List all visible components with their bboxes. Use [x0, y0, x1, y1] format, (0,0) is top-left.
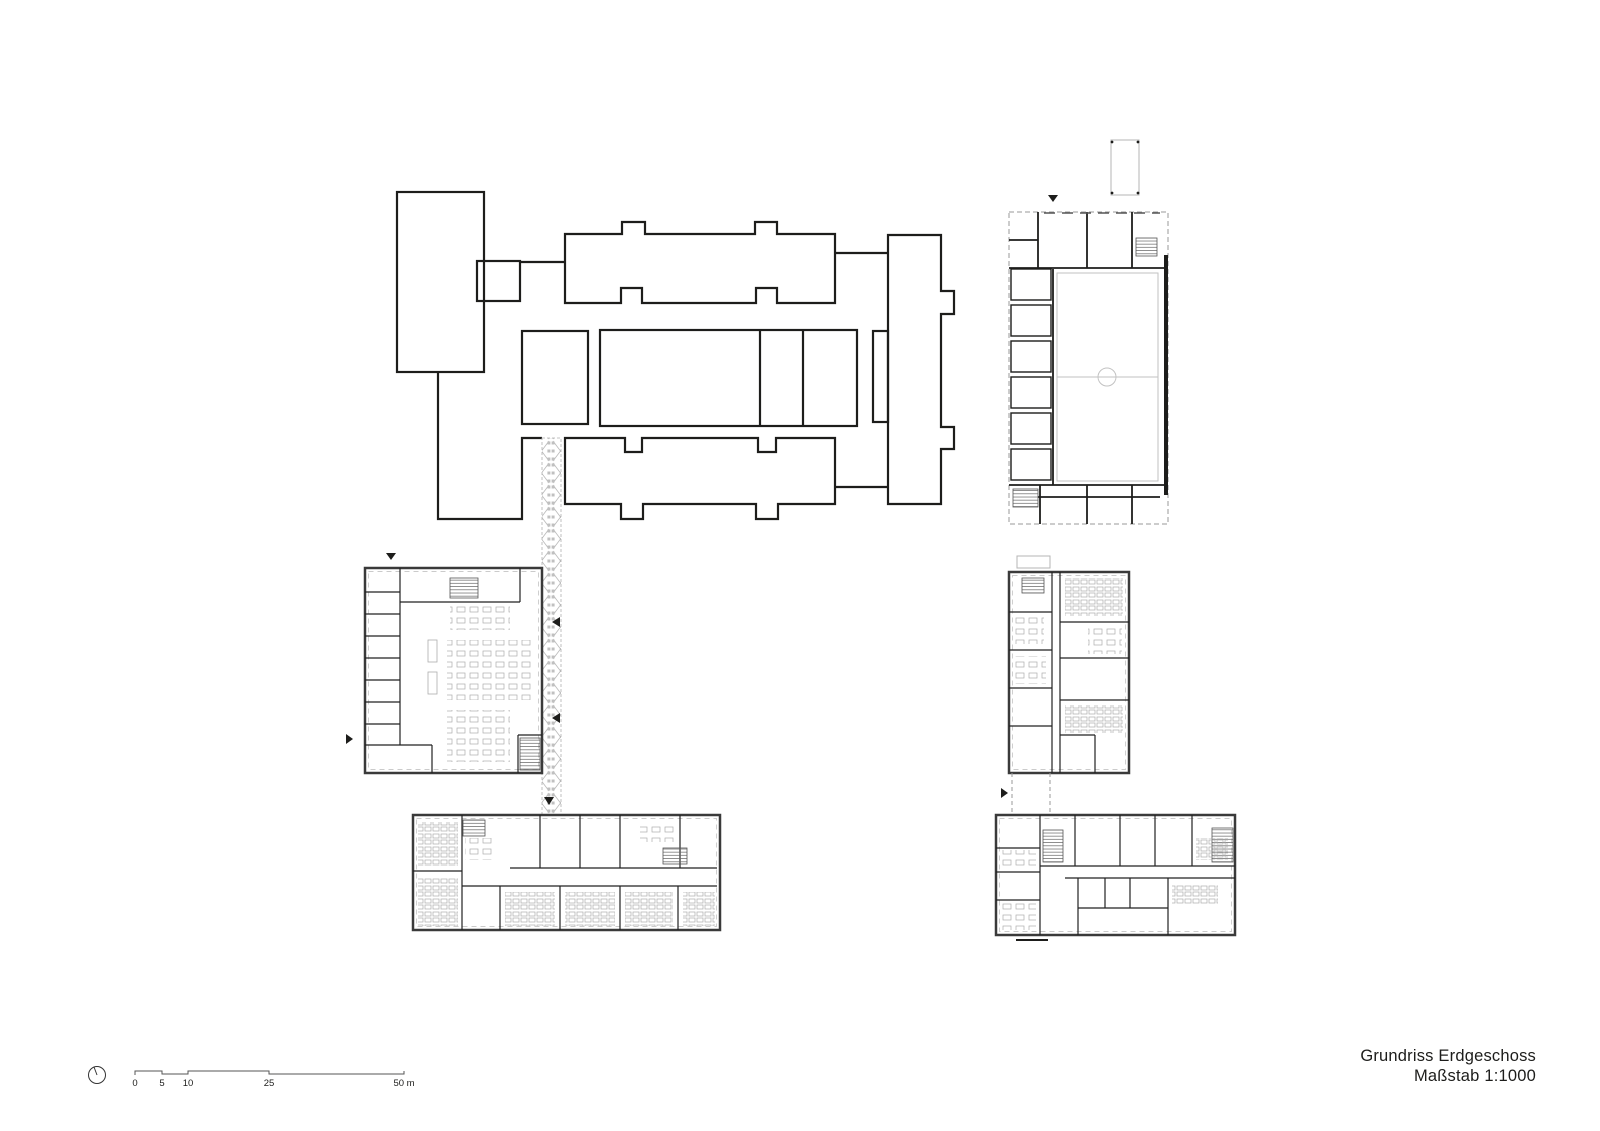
stair — [1043, 830, 1063, 862]
entrance-arrow-down-icon — [386, 553, 396, 560]
main-complex-south-slab — [565, 438, 835, 519]
canopy-outline — [1111, 140, 1139, 195]
floor-plan-drawing: 0 5 10 25 50 m — [0, 0, 1600, 1131]
link-corridor-vertical — [542, 438, 561, 815]
stair — [663, 848, 687, 864]
building-classrooms-east — [1001, 556, 1129, 815]
title-block: Grundriss Erdgeschoss Maßstab 1:1000 — [1360, 1046, 1536, 1086]
building-admin-southeast — [996, 815, 1235, 940]
main-complex-east-slab — [888, 235, 954, 504]
canopy-outline — [1017, 556, 1050, 568]
main-complex-mid-block-center — [600, 330, 857, 426]
main-complex-mid-block-west — [522, 331, 588, 424]
drawing-scale: Maßstab 1:1000 — [1360, 1066, 1536, 1086]
entrance-arrow-down-icon — [1048, 195, 1058, 202]
stair — [463, 820, 485, 836]
main-complex-tall-block — [397, 192, 484, 372]
stair — [450, 578, 478, 598]
building-cafeteria — [346, 553, 542, 773]
scale-bar: 0 5 10 25 50 m — [132, 1071, 414, 1089]
main-complex-narrow-block — [873, 331, 888, 422]
drawing-title: Grundriss Erdgeschoss — [1360, 1046, 1536, 1066]
stair — [1022, 578, 1044, 593]
scale-bar-line — [135, 1071, 404, 1075]
sports-hall-envelope — [1009, 212, 1168, 524]
scale-label-25: 25 — [264, 1078, 275, 1089]
building-classroom-wing-south — [413, 815, 720, 930]
north-arrow-icon — [89, 1067, 106, 1084]
stair — [520, 738, 540, 770]
entrance-arrow-right-icon — [346, 734, 353, 744]
stair — [1013, 489, 1038, 507]
scale-label-50: 50 m — [393, 1078, 414, 1089]
main-complex-north-slab — [565, 222, 835, 303]
link-corridor-east — [1001, 773, 1050, 815]
scale-label-10: 10 — [183, 1078, 194, 1089]
entrance-arrow-right-icon — [1001, 788, 1008, 798]
scale-label-0: 0 — [132, 1078, 137, 1089]
building-sports-hall — [1009, 140, 1168, 524]
building-main-complex-outline — [397, 192, 954, 519]
stair — [1136, 238, 1157, 256]
main-complex-west-corridor — [438, 372, 542, 519]
scale-label-5: 5 — [159, 1078, 164, 1089]
